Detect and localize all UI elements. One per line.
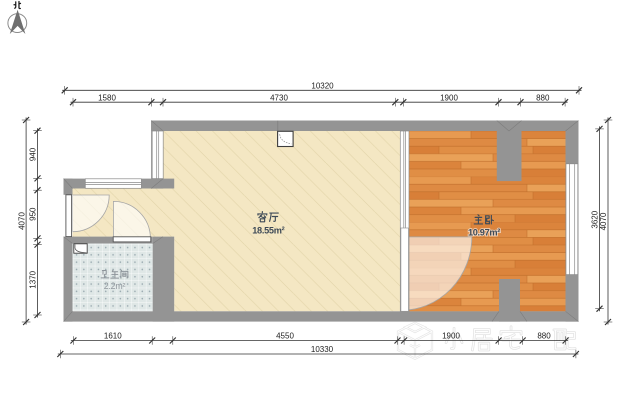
svg-text:2.2m²: 2.2m² xyxy=(104,281,126,291)
svg-text:4730: 4730 xyxy=(270,93,288,102)
svg-text:4070: 4070 xyxy=(599,212,608,230)
svg-text:1610: 1610 xyxy=(104,332,122,341)
svg-text:880: 880 xyxy=(536,93,550,102)
svg-text:1580: 1580 xyxy=(98,93,116,102)
svg-text:10.97m²: 10.97m² xyxy=(468,228,500,238)
svg-text:880: 880 xyxy=(537,332,551,341)
svg-text:18.55m²: 18.55m² xyxy=(252,225,284,235)
svg-text:4550: 4550 xyxy=(276,332,294,341)
svg-text:10330: 10330 xyxy=(311,345,334,354)
svg-text:1900: 1900 xyxy=(442,332,460,341)
svg-text:1370: 1370 xyxy=(29,270,38,288)
svg-text:1900: 1900 xyxy=(440,93,458,102)
svg-text:950: 950 xyxy=(29,207,38,221)
svg-text:940: 940 xyxy=(29,147,38,161)
svg-text:10320: 10320 xyxy=(311,82,334,91)
svg-text:4070: 4070 xyxy=(17,212,26,230)
